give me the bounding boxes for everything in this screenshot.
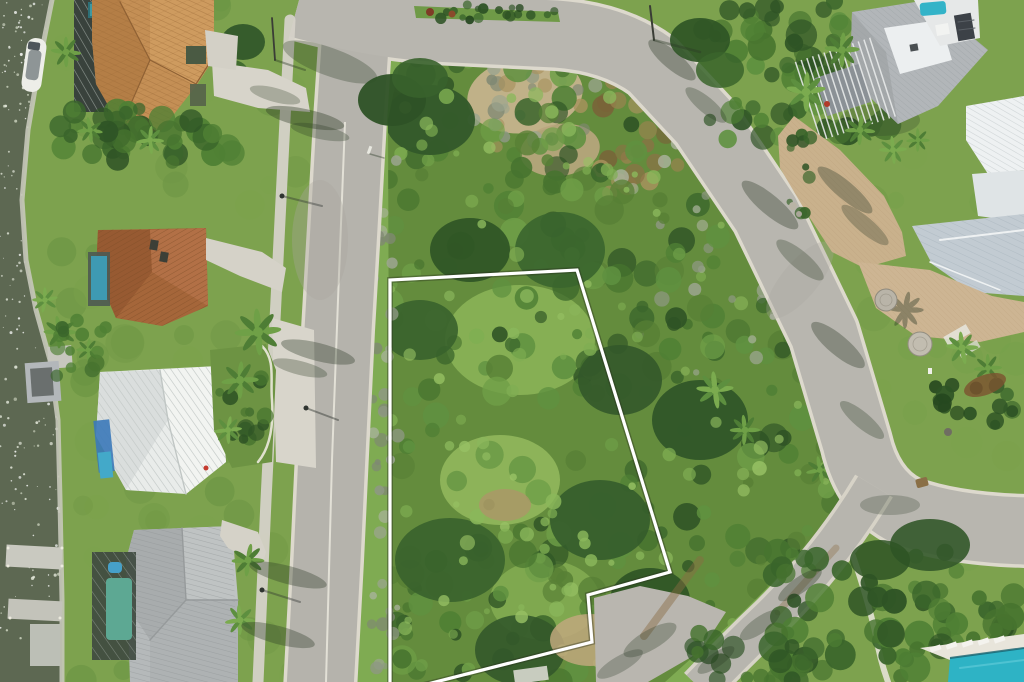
rooftop-spa bbox=[919, 1, 946, 16]
boat-bow bbox=[28, 41, 41, 51]
sand-patch bbox=[479, 489, 531, 521]
mailbox bbox=[928, 368, 932, 374]
aerial-photograph bbox=[0, 0, 1024, 682]
skylight bbox=[149, 239, 159, 250]
walk-path bbox=[205, 30, 238, 70]
manhole bbox=[944, 428, 952, 436]
tree-canopy bbox=[550, 480, 650, 560]
street-asphalt-west bbox=[320, 0, 358, 682]
stone-circle bbox=[875, 289, 897, 311]
dock-post bbox=[59, 617, 62, 620]
boulder bbox=[796, 211, 802, 217]
spa bbox=[108, 562, 122, 573]
pool-3 bbox=[98, 451, 114, 478]
overhanging-canopy bbox=[696, 52, 744, 88]
pool-4 bbox=[106, 578, 132, 640]
dock-post bbox=[7, 565, 10, 568]
skylight bbox=[159, 251, 169, 262]
dock-walkway bbox=[30, 624, 60, 666]
dock-pier bbox=[5, 545, 62, 570]
courtyard-1 bbox=[190, 84, 206, 106]
lifted-boat bbox=[30, 367, 54, 396]
house-b-roof-white bbox=[972, 170, 1024, 222]
overhanging-canopy bbox=[392, 58, 448, 98]
red-shrub bbox=[449, 11, 456, 18]
boulder bbox=[789, 202, 797, 210]
tree-canopy bbox=[652, 380, 748, 460]
dock-post bbox=[61, 547, 64, 550]
courtyard-1 bbox=[186, 46, 206, 64]
roof-vent bbox=[909, 43, 918, 51]
tree-canopy bbox=[395, 518, 505, 602]
dock-pier bbox=[8, 599, 63, 622]
tree-canopy bbox=[515, 212, 605, 288]
pool-2 bbox=[91, 256, 107, 300]
rooftop-equipment bbox=[935, 23, 950, 36]
tree-shadow-on-street bbox=[860, 495, 920, 515]
red-shrub bbox=[426, 8, 434, 16]
asphalt-patch bbox=[292, 180, 348, 300]
flag bbox=[204, 466, 209, 471]
dock-post bbox=[7, 547, 10, 550]
red-plant bbox=[824, 101, 830, 107]
dock-post bbox=[61, 565, 64, 568]
dock-post bbox=[9, 617, 12, 620]
scene-svg bbox=[0, 0, 1024, 682]
overhanging-canopy bbox=[850, 540, 910, 580]
stone-circle bbox=[908, 332, 932, 356]
